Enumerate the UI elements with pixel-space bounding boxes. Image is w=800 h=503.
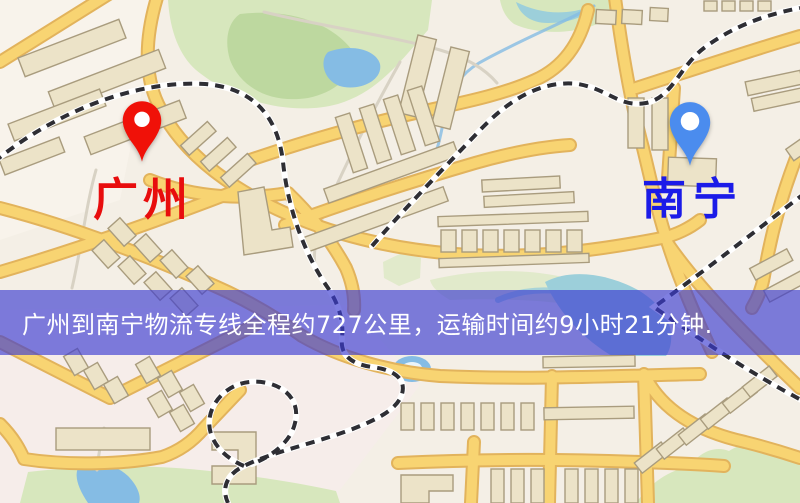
red-map-pin-icon[interactable] xyxy=(120,100,164,164)
map-canvas[interactable] xyxy=(0,0,800,503)
route-info-banner: 广州到南宁物流专线全程约727公里，运输时间约9小时21分钟. xyxy=(0,290,800,355)
origin-city-label: 广州 xyxy=(93,177,193,222)
map-image: 广州 南宁 广州到南宁物流专线全程约727公里，运输时间约9小时21分钟. xyxy=(0,0,800,503)
destination-city-label: 南宁 xyxy=(642,178,744,222)
route-info-text: 广州到南宁物流专线全程约727公里，运输时间约9小时21分钟. xyxy=(22,305,713,340)
blue-map-pin-icon[interactable] xyxy=(666,101,714,168)
